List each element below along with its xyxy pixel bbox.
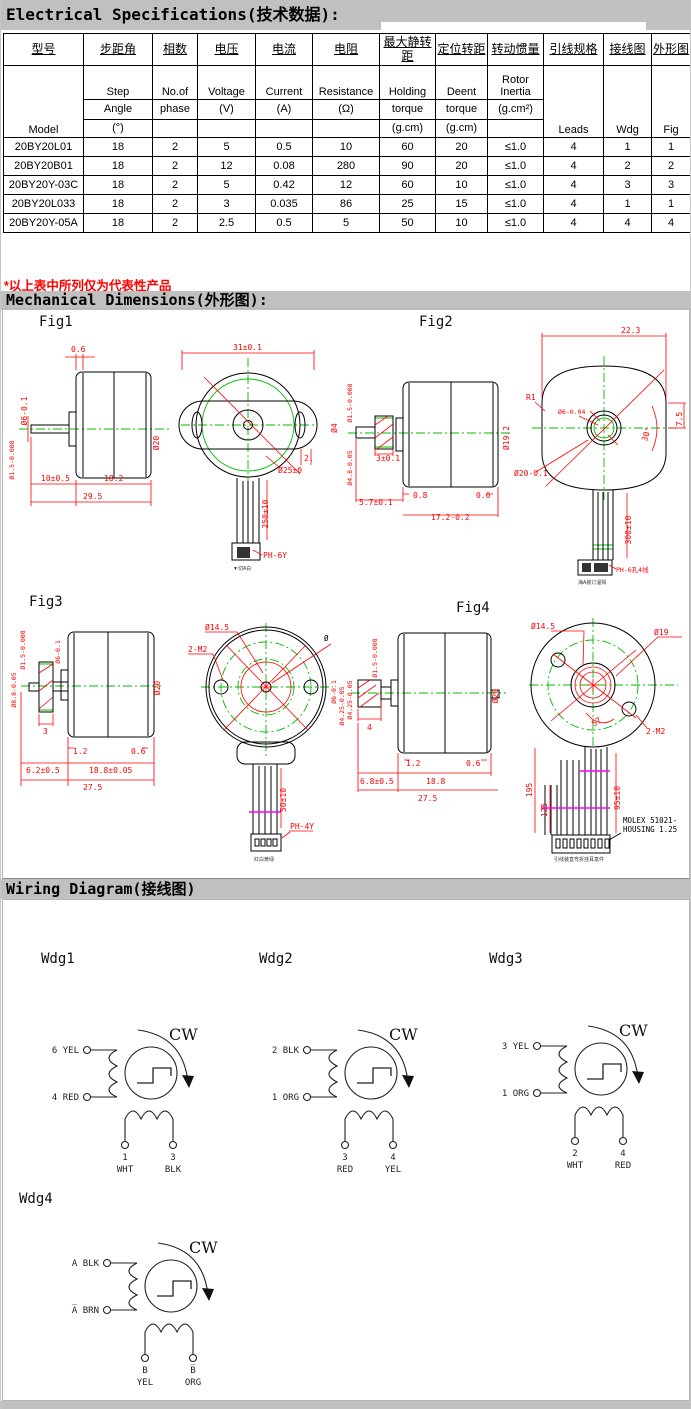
wiring-title: Wiring Diagram(接线图) [6,880,196,898]
fig1-connector-note: ▼切A白 [233,565,251,572]
terminal-color: ORG [185,1378,201,1388]
terminal-label: 6 YEL [52,1046,79,1056]
dim-label: 95±10 [613,786,622,810]
dim-label: 1.2 [406,759,421,768]
cw-arrowhead [202,1288,214,1301]
fig1-drawing: 0.6 Ø6-0.1 Ø1.5-0.008 10±0.5 18.2 29.5 Ø… [1,308,346,580]
col-header-model-en: Model [4,66,84,138]
terminal-color: YEL [385,1165,401,1175]
dim-label: R1 [526,393,536,402]
dim-label: 3 [43,727,48,736]
dim-label: Ø20 [152,681,162,696]
winding-circuit [84,1030,189,1149]
dim-label: 18.8 [426,777,445,786]
dim-label: 10±0.5 [41,474,70,483]
winding-circuit [534,1026,639,1145]
terminal-label: 4 RED [52,1093,79,1103]
terminal-number: 4 [390,1153,395,1163]
terminal-number: 3 [342,1153,347,1163]
dim-label: 0.8 [413,491,428,500]
dim-label: Ø1.5-0.008 [8,440,16,479]
table-row: 20BY20Y-03C18250.42126010≤1.0433 [4,176,691,195]
table-row: 20BY20L0118250.5106020≤1.0411 [4,138,691,157]
dim-label: Ø6-0.1 [19,396,29,425]
connector-label: PH-4Y [290,822,314,831]
fig2-drawing: 3±0.1 5.7±0.1 0.8 0.6 17.2-0.2 Ø19.2 Ø1.… [346,308,691,588]
dim-label: Ø20 [490,689,500,704]
fig2-connector-cavity [594,563,608,572]
dim-label: 22.3 [621,326,640,335]
header-row-en1: Model Step No.of Voltage Current Resista… [4,66,691,100]
table-row: 20BY20L03318230.035862515≤1.0411 [4,195,691,214]
dim-label: Ø4.8-0.05 [346,450,354,485]
fig1-dimension-labels: 0.6 Ø6-0.1 Ø1.5-0.008 10±0.5 18.2 29.5 Ø… [8,343,339,560]
terminal-label: 2 BLK [272,1046,300,1056]
dim-label: 5.7±0.1 [359,498,393,507]
terminal-number: 2 [572,1149,577,1159]
winding-circuit [304,1030,409,1149]
wdg2-diagram: CW 2 BLK 1 ORG 3 4 RED YEL [241,1022,441,1177]
dim-label: 195 [525,783,534,798]
dim-label: Ø20 [151,436,161,451]
wdg1-diagram: CW 6 YEL 4 RED 1 3 WHT BLK [21,1022,221,1177]
dim-label: 7.5 [675,412,684,427]
fig2-side-view [356,382,498,487]
dim-label: Ø [324,634,329,643]
fig1-connector-cavity [237,547,250,558]
dim-label: 6.2±0.5 [26,766,60,775]
fig2-connector-note: 海A装订温褐 [578,579,606,586]
dim-label: Ø14.5 [205,622,229,632]
terminal-label: 1 ORG [502,1089,529,1099]
dim-label: 4 [367,723,372,732]
table-row: 20BY20B01182120.082809020≤1.0422 [4,157,691,176]
connector-label: PH-6Y [263,551,287,560]
terminal-label: 3 YEL [502,1042,529,1052]
dim-label: 250±10 [261,499,270,528]
terminal-number: B [142,1366,147,1376]
dim-label: 57 [590,715,603,728]
dim-label: 6.8±0.5 [360,777,394,786]
terminal-label: A̅ BRN [72,1304,99,1316]
fig2-centerlines [348,356,678,500]
fig4-connector-note: 引线装直弯折挂耳富件 [554,856,604,863]
wdg2-label: Wdg2 [259,951,293,967]
header-notch [381,22,646,30]
fig1-dimension-lines [28,350,314,555]
dim-label: Ø1.5-0.008 [346,383,354,422]
dim-label: Ø19 [654,627,669,637]
dim-label: 125 [540,803,549,818]
fig3-drawing: Ø1.5-0.008 Ø6-0.1 Ø8.8-0.05 3 1.2 0.6 6.… [1,588,346,880]
cw-label: CW [389,1025,418,1044]
terminal-label: A BLK [72,1259,100,1269]
dim-label: 3±0.1 [376,454,400,463]
dim-label: Ø4.25-0.05 [338,686,346,725]
cw-label: CW [189,1238,218,1257]
dim-label: Ø8.8-0.05 [10,672,18,707]
fig2-dimension-labels: 3±0.1 5.7±0.1 0.8 0.6 17.2-0.2 Ø19.2 Ø1.… [346,326,684,574]
wdg4-diagram: CW A BLK A̅ BRN B B̅ YEL ORG [41,1235,241,1390]
dim-label: 31±0.1 [233,343,262,352]
dim-label: Ø1.5-0.008 [19,630,27,669]
winding-circuit [104,1243,209,1362]
dim-label: 50±10 [279,788,288,812]
dim-label: Ø20-0.1 [514,468,548,478]
dim-label: Ø25±0 [278,465,302,475]
dim-label: 2-M2 [188,645,207,654]
wdg1-label: Wdg1 [41,951,75,967]
molex-label: MOLEX 51021- [623,816,677,825]
dim-label: Ø6-0.1 [54,640,62,664]
wdg4-label: Wdg4 [19,1191,53,1207]
terminal-color: WHT [567,1161,584,1171]
dim-label: 27.5 [83,783,102,792]
terminal-color: WHT [117,1165,134,1175]
molex-label: HOUSING 1.25 [623,825,677,834]
cw-label: CW [169,1025,198,1044]
dim-label: 17.2-0.2 [431,513,470,522]
fig2-gear-marks [375,418,613,549]
cw-arrowhead [182,1075,194,1088]
fig2-lead-wires [578,490,613,575]
terminal-number: 4 [620,1149,625,1159]
dim-label: Ø1.5-0.008 [371,638,379,677]
wdg3-label: Wdg3 [489,951,523,967]
electrical-title: Electrical Specifications(技术数据): [6,5,340,24]
dim-label: Ø14.5 [531,621,555,631]
dim-label: 27.5 [418,794,437,803]
datasheet-page: Electrical Specifications(技术数据): 型号 步距角 … [0,0,691,1409]
fig4-drawing: Ø1.5-0.008 Ø4.25-0.05 4 1.2 0.6 6.8±0.5 … [346,588,691,880]
terminal-number: 1 [122,1153,127,1163]
header-row-cn: 型号 步距角 相数 电压 电流 电阻 最大静转距 定位转距 转动惯量 引线规格 … [4,34,691,66]
table-row: 20BY20Y-05A1822.50.555010≤1.0444 [4,214,691,233]
connector-label: PH-6孔4线 [616,565,649,574]
bottom-strip [1,1401,691,1409]
dim-label: Ø6-0.04 [558,408,585,416]
dim-label: 0.6 [466,759,481,768]
terminal-label: 1 ORG [272,1093,299,1103]
fig4-dimension-labels: Ø1.5-0.008 Ø4.25-0.05 4 1.2 0.6 6.8±0.5 … [346,621,677,834]
cw-arrowhead [402,1075,414,1088]
terminal-color: YEL [137,1378,153,1388]
dim-label: 300±10 [624,515,633,544]
dim-label: 2. [304,454,314,463]
dim-label: 1.2 [73,747,88,756]
section-header-wiring: Wiring Diagram(接线图) [1,879,691,899]
terminal-color: RED [337,1165,353,1175]
terminal-number: B̅ [190,1364,196,1376]
fig3-connector-note: 红白黄绿 [254,856,274,863]
fig4-centerlines [351,618,678,748]
fig3-lead-wires [251,764,281,851]
col-header-model-cn: 型号 [4,34,84,66]
cw-arrowhead [632,1071,644,1084]
dim-label: 0.6 [131,747,146,756]
terminal-number: 3 [170,1153,175,1163]
terminal-color: RED [615,1161,631,1171]
spec-table: 型号 步距角 相数 电压 电流 电阻 最大静转距 定位转距 转动惯量 引线规格 … [3,33,691,233]
dim-label: Ø6-0.1 [330,680,338,704]
fig2-connector-cavity [582,563,591,572]
fig1-side-view [31,372,151,478]
dim-label: Ø4 [329,423,339,433]
mechanical-title: Mechanical Dimensions(外形图): [6,291,268,309]
dim-label: Ø4.25-0.05 [346,680,354,719]
wdg3-diagram: CW 3 YEL 1 ORG 2 4 WHT RED [471,1018,671,1173]
dim-label: 18.8±0.05 [89,766,133,775]
terminal-color: BLK [165,1165,182,1175]
dim-label: 0.6 [71,345,86,354]
fig2-dimension-lines [356,333,686,569]
fig2-gear-hatch [375,416,393,449]
dim-label: Ø19.2 [501,426,511,450]
dim-label: 2-M2 [646,727,665,736]
dim-label: 18.2 [104,474,123,483]
fig4-lead-wires [545,747,610,853]
dim-label: 29.5 [83,492,102,501]
fig4-molex-leader [609,833,621,840]
cw-label: CW [619,1021,648,1040]
dim-label: 0.6 [476,491,491,500]
